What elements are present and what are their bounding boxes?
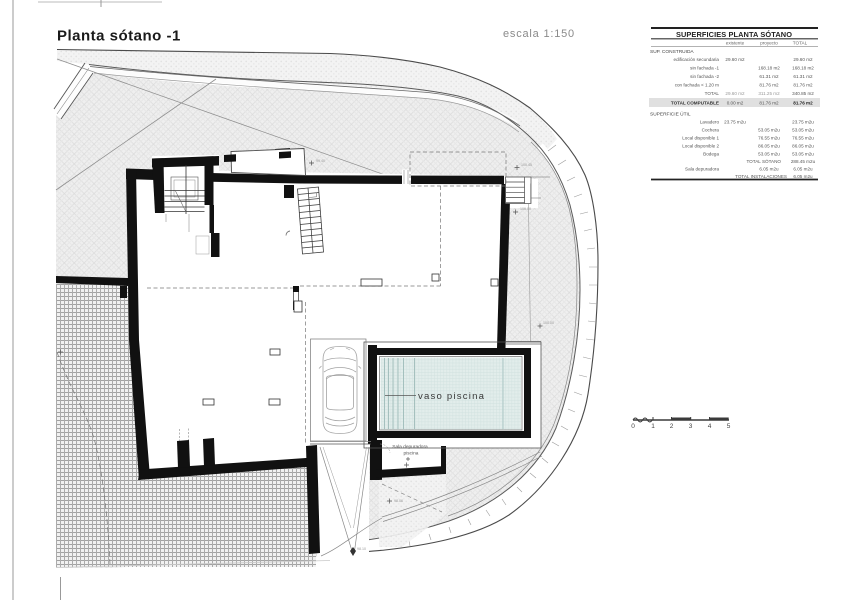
svg-text:5: 5 (727, 423, 731, 430)
svg-text:168.18 m2: 168.18 m2 (758, 66, 780, 71)
svg-text:4: 4 (708, 423, 712, 430)
svg-text:81.76 m2: 81.76 m2 (793, 101, 813, 106)
svg-text:TOTAL SÓTANO: TOTAL SÓTANO (746, 158, 781, 164)
svg-text:Lavadero: Lavadero (700, 120, 720, 125)
svg-text:99.40: 99.40 (316, 159, 325, 163)
svg-text:3: 3 (689, 423, 693, 430)
svg-text:6.05 m2u: 6.05 m2u (793, 174, 813, 179)
svg-text:23.75 m2u: 23.75 m2u (792, 120, 814, 125)
svg-text:100.00: 100.00 (543, 321, 554, 325)
svg-text:Local disponible 1: Local disponible 1 (682, 136, 719, 141)
svg-text:81.76 m2: 81.76 m2 (793, 83, 813, 88)
svg-text:SUPERFICIES PLANTA SÓTANO: SUPERFICIES PLANTA SÓTANO (676, 30, 792, 39)
svg-text:53.05 m2u: 53.05 m2u (792, 152, 814, 157)
svg-text:86.05 m2u: 86.05 m2u (792, 144, 814, 149)
svg-text:81.76 m2: 81.76 m2 (759, 83, 779, 88)
svg-text:escala 1:150: escala 1:150 (503, 28, 575, 40)
svg-text:29.60 m2: 29.60 m2 (793, 57, 813, 62)
svg-text:53.05 m2u: 53.05 m2u (792, 128, 814, 133)
svg-text:TOTAL: TOTAL (705, 91, 720, 96)
svg-text:0.00 m2: 0.00 m2 (727, 101, 744, 106)
svg-text:76.55 m2u: 76.55 m2u (792, 136, 814, 141)
svg-text:sin fachada -1: sin fachada -1 (690, 66, 719, 71)
svg-text:Planta sótano -1: Planta sótano -1 (57, 28, 181, 45)
svg-text:vaso piscina: vaso piscina (418, 391, 485, 402)
svg-text:existente: existente (726, 41, 745, 46)
svg-text:288.45 m2u: 288.45 m2u (791, 159, 816, 164)
svg-text:53.05 m2u: 53.05 m2u (758, 128, 780, 133)
svg-text:98.10: 98.10 (357, 547, 366, 551)
svg-text:sin fachada -2: sin fachada -2 (690, 74, 719, 79)
svg-text:100.00: 100.00 (520, 207, 531, 211)
svg-text:29.60 m2: 29.60 m2 (725, 91, 745, 96)
svg-text:76.55 m2u: 76.55 m2u (758, 136, 780, 141)
svg-text:TOTAL COMPUTABLE: TOTAL COMPUTABLE (671, 101, 719, 106)
svg-text:81.76 m2: 81.76 m2 (759, 101, 779, 106)
svg-text:6.05 m2u: 6.05 m2u (793, 167, 813, 172)
svg-text:53.05 m2u: 53.05 m2u (758, 152, 780, 157)
svg-text:piscina: piscina (404, 451, 419, 457)
svg-text:311.25 m2: 311.25 m2 (758, 91, 780, 96)
svg-text:Cochera: Cochera (702, 128, 720, 133)
svg-text:con fachada < 1.20 m: con fachada < 1.20 m (675, 83, 719, 88)
svg-text:168.18 m2: 168.18 m2 (792, 66, 814, 71)
svg-text:23.75 m2u: 23.75 m2u (724, 120, 746, 125)
svg-text:Bodega: Bodega (703, 152, 719, 157)
svg-text:100.45: 100.45 (521, 163, 532, 167)
svg-text:0: 0 (631, 423, 635, 430)
svg-text:98.06: 98.06 (394, 499, 403, 503)
svg-text:Sala depuradora: Sala depuradora (685, 167, 719, 172)
svg-text:2: 2 (670, 423, 674, 430)
svg-text:86.05 m2u: 86.05 m2u (758, 144, 780, 149)
svg-text:proyecto: proyecto (760, 41, 778, 46)
svg-text:6.05 m2u: 6.05 m2u (759, 167, 779, 172)
svg-text:TOTAL INSTALACIONES: TOTAL INSTALACIONES (735, 174, 787, 179)
svg-text:SUPERFICIE ÚTIL: SUPERFICIE ÚTIL (650, 111, 691, 118)
svg-text:340.85 m2: 340.85 m2 (792, 91, 814, 96)
svg-text:29.60 m2: 29.60 m2 (725, 57, 745, 62)
svg-text:61.31 m2: 61.31 m2 (793, 74, 813, 79)
svg-text:Local disponible 2: Local disponible 2 (682, 144, 719, 149)
svg-text:TOTAL: TOTAL (793, 41, 808, 46)
svg-text:Sala depuradora: Sala depuradora (392, 444, 428, 450)
svg-text:1: 1 (651, 423, 655, 430)
svg-text:61.31 m2: 61.31 m2 (759, 74, 779, 79)
svg-text:SUP. CONSTRUIDA: SUP. CONSTRUIDA (650, 49, 694, 55)
svg-text:edificación secundaria: edificación secundaria (674, 57, 720, 62)
